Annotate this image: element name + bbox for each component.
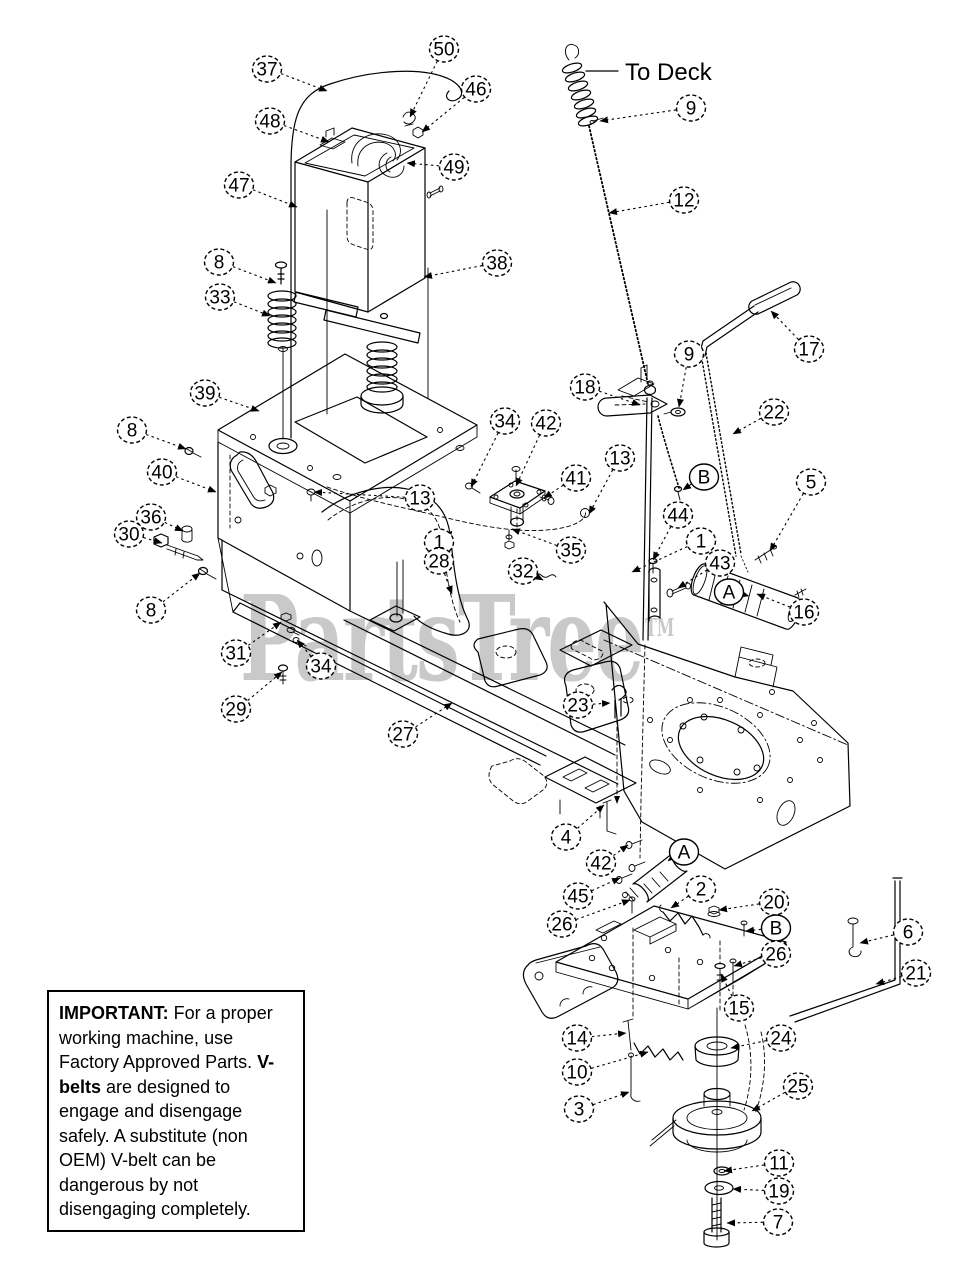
callout-number: 36 <box>140 508 161 529</box>
note-text: are designed to engage and disengage saf… <box>59 1077 251 1220</box>
callout-leader <box>281 74 327 91</box>
callout-number: 8 <box>146 601 157 622</box>
callout-number: 37 <box>256 60 277 81</box>
callout-33: 33 <box>206 284 271 316</box>
callout-12: 12 <box>609 187 699 213</box>
callout-number: 24 <box>770 1029 792 1050</box>
callout-37: 37 <box>253 56 328 91</box>
lift-rod <box>643 398 652 640</box>
lift-link-1 <box>649 559 660 622</box>
callout-leader <box>746 929 761 931</box>
callout-number: 19 <box>768 1182 789 1203</box>
callout-number: 4 <box>561 828 572 849</box>
callout-26: 26 <box>734 941 791 967</box>
callout-number: 46 <box>465 80 486 101</box>
callout-number: 42 <box>535 414 556 435</box>
callout-number: 26 <box>765 945 786 966</box>
callout-36: 36 <box>137 504 184 531</box>
callout-number: 25 <box>787 1077 808 1098</box>
battery-box-drawing <box>291 71 462 438</box>
callout-40: 40 <box>148 459 217 492</box>
callout-19: 19 <box>733 1178 794 1204</box>
belt-keeper-21 <box>790 878 902 1022</box>
callout-number: 16 <box>793 603 814 624</box>
callout-leader <box>233 267 276 283</box>
callout-38: 38 <box>424 250 512 277</box>
callout-11: 11 <box>724 1150 794 1176</box>
callout-leader <box>163 573 200 602</box>
callout-number: 22 <box>763 403 784 424</box>
deck-rod-drawing <box>561 44 685 500</box>
callout-number: 33 <box>209 288 230 309</box>
callout-number: 49 <box>443 158 464 179</box>
callout-leader <box>653 527 671 560</box>
callout-number: 42 <box>590 854 611 875</box>
callout-leader <box>297 640 311 656</box>
callout-leader <box>165 522 183 531</box>
frame-rails-drawing <box>218 538 625 784</box>
callout-number: 28 <box>428 552 449 573</box>
callout-6: 6 <box>860 919 923 945</box>
callout-number: 7 <box>773 1213 784 1234</box>
callout-leader <box>424 266 482 277</box>
callout-number: 48 <box>259 112 280 133</box>
callout-leader <box>876 977 902 984</box>
callout-B: B <box>683 464 719 490</box>
callout-number: 14 <box>566 1029 588 1050</box>
callout-number: 15 <box>728 999 749 1020</box>
callout-number: 40 <box>151 463 172 484</box>
spring-2 <box>663 912 703 935</box>
callout-34: 34 <box>471 408 520 487</box>
callout-number: 13 <box>609 449 630 470</box>
callout-number: 13 <box>409 489 430 510</box>
callout-number: 27 <box>392 725 413 746</box>
callout-number: 26 <box>551 915 572 936</box>
callout-number: 8 <box>214 253 225 274</box>
callout-number: 8 <box>127 421 138 442</box>
callout-leader <box>744 595 749 596</box>
seat-spring <box>361 342 403 413</box>
callout-leader <box>589 470 613 514</box>
callout-13: 13 <box>589 445 635 514</box>
callout-number: 3 <box>574 1100 585 1121</box>
callout-number: 31 <box>225 644 246 665</box>
callout-leader <box>770 494 803 551</box>
callout-29: 29 <box>222 672 283 722</box>
callout-number: 43 <box>709 554 730 575</box>
callout-number: 20 <box>763 893 784 914</box>
callout-5: 5 <box>770 469 826 551</box>
to-deck-callout: To Deck <box>586 59 713 86</box>
callout-number: 2 <box>696 880 707 901</box>
callout-leader <box>727 1222 763 1223</box>
callout-leader <box>733 1189 764 1190</box>
callout-number: 11 <box>769 1154 789 1175</box>
callout-9: 9 <box>675 341 704 407</box>
callout-leader <box>176 477 216 492</box>
callout-number: 41 <box>565 469 586 490</box>
callout-A: A <box>715 579 750 605</box>
callout-25: 25 <box>752 1073 813 1111</box>
pivot-bracket-drawing <box>466 467 557 579</box>
callout-leader <box>471 433 498 487</box>
callout-50: 50 <box>410 36 459 117</box>
callout-45: 45 <box>564 878 621 909</box>
callout-16: 16 <box>757 594 819 625</box>
callout-number: 18 <box>574 378 595 399</box>
callout-number: 39 <box>194 384 215 405</box>
callout-34: 34 <box>297 640 336 679</box>
callout-number: A <box>723 583 736 604</box>
callout-8: 8 <box>118 417 187 449</box>
pulley-25 <box>650 1089 761 1153</box>
callout-leader <box>719 904 759 910</box>
callout-47: 47 <box>225 172 298 207</box>
callout-number: 6 <box>903 923 914 944</box>
callout-number: 23 <box>567 696 588 717</box>
callout-42: 42 <box>516 410 561 486</box>
callout-number: 5 <box>806 473 817 494</box>
callout-number: 21 <box>905 964 926 985</box>
spring-10 <box>634 1043 683 1060</box>
callout-23: 23 <box>564 692 611 718</box>
callout-leader <box>219 397 259 411</box>
callout-31: 31 <box>222 622 282 666</box>
callout-number: 34 <box>494 412 516 433</box>
callout-49: 49 <box>407 154 469 180</box>
callout-number: B <box>698 468 711 489</box>
note-bold-text: IMPORTANT: <box>59 1003 169 1023</box>
callout-number: 35 <box>560 541 581 562</box>
bolt-7 <box>704 1198 729 1247</box>
callout-number: 12 <box>673 191 694 212</box>
spring-33 <box>268 262 296 348</box>
callout-leader <box>422 97 464 132</box>
callout-leader <box>544 485 563 498</box>
callout-3: 3 <box>565 1092 630 1122</box>
callout-number: 1 <box>696 532 707 553</box>
callout-leader <box>143 538 162 543</box>
lever-drawing <box>649 282 806 630</box>
parts-diagram-page: PartsTreeTM <box>0 0 966 1280</box>
callout-32: 32 <box>509 558 544 584</box>
callout-leader <box>146 434 186 449</box>
callout-leader <box>516 435 540 486</box>
callout-number: 30 <box>118 525 139 546</box>
callout-leader <box>860 935 893 943</box>
callout-leader <box>593 703 610 704</box>
callout-leader <box>593 1092 629 1105</box>
callout-number: 10 <box>566 1063 587 1084</box>
callout-number: 9 <box>684 345 695 366</box>
callout-number: 34 <box>310 657 332 678</box>
callout-9: 9 <box>600 95 706 121</box>
callout-number: 44 <box>667 506 689 527</box>
callout-number: A <box>678 843 691 864</box>
callout-21: 21 <box>876 960 931 986</box>
callout-number: 29 <box>225 700 246 721</box>
callout-leader <box>284 126 329 142</box>
callout-18: 18 <box>571 374 641 405</box>
callout-leader <box>234 302 270 316</box>
callout-2: 2 <box>671 876 716 908</box>
callout-4: 4 <box>552 805 605 850</box>
battery-cable-37 <box>291 71 462 438</box>
callout-leader <box>683 484 691 490</box>
pulley-stack-drawing <box>650 1008 765 1247</box>
callout-42: 42 <box>587 845 629 876</box>
callout-leader <box>679 367 686 407</box>
callout-leader <box>771 311 798 339</box>
callout-41: 41 <box>544 465 591 498</box>
callout-10: 10 <box>563 1052 649 1085</box>
callout-number: 32 <box>512 562 533 583</box>
callout-27: 27 <box>389 703 453 747</box>
callout-number: 47 <box>228 176 249 197</box>
callout-8: 8 <box>205 249 277 283</box>
callout-leader <box>668 859 671 861</box>
callout-leader <box>724 1165 764 1171</box>
callout-number: 17 <box>798 340 819 361</box>
callout-leader <box>600 110 676 121</box>
callout-leader <box>632 547 687 572</box>
callout-leader <box>733 418 761 434</box>
callout-leader <box>757 594 790 607</box>
callout-number: 9 <box>686 99 697 120</box>
callout-number: 50 <box>433 40 454 61</box>
callout-17: 17 <box>771 311 824 362</box>
callout-20: 20 <box>719 889 789 915</box>
callout-number: 45 <box>567 887 588 908</box>
callout-number: 38 <box>486 254 507 275</box>
callout-44: 44 <box>653 502 693 560</box>
callout-leader <box>248 672 282 701</box>
callout-number: B <box>770 919 783 940</box>
callout-35: 35 <box>512 529 586 563</box>
callout-leader <box>592 1033 626 1037</box>
callout-leader <box>410 61 437 117</box>
callout-22: 22 <box>733 399 789 434</box>
callout-leader <box>609 202 669 213</box>
callout-24: 24 <box>731 1025 796 1051</box>
callout-leader <box>407 163 439 166</box>
callout-leader <box>450 531 452 533</box>
callout-leader <box>537 577 543 580</box>
callout-leader <box>591 1052 648 1068</box>
callout-7: 7 <box>727 1209 793 1235</box>
callout-39: 39 <box>191 380 260 411</box>
callout-leader <box>671 896 688 908</box>
callout-8: 8 <box>137 573 201 623</box>
callout-B: B <box>746 915 791 941</box>
important-note: IMPORTANT: For a proper working machine,… <box>47 990 305 1232</box>
callout-14: 14 <box>563 1025 627 1051</box>
to-deck-label: To Deck <box>625 59 713 86</box>
callout-leader <box>512 529 557 545</box>
